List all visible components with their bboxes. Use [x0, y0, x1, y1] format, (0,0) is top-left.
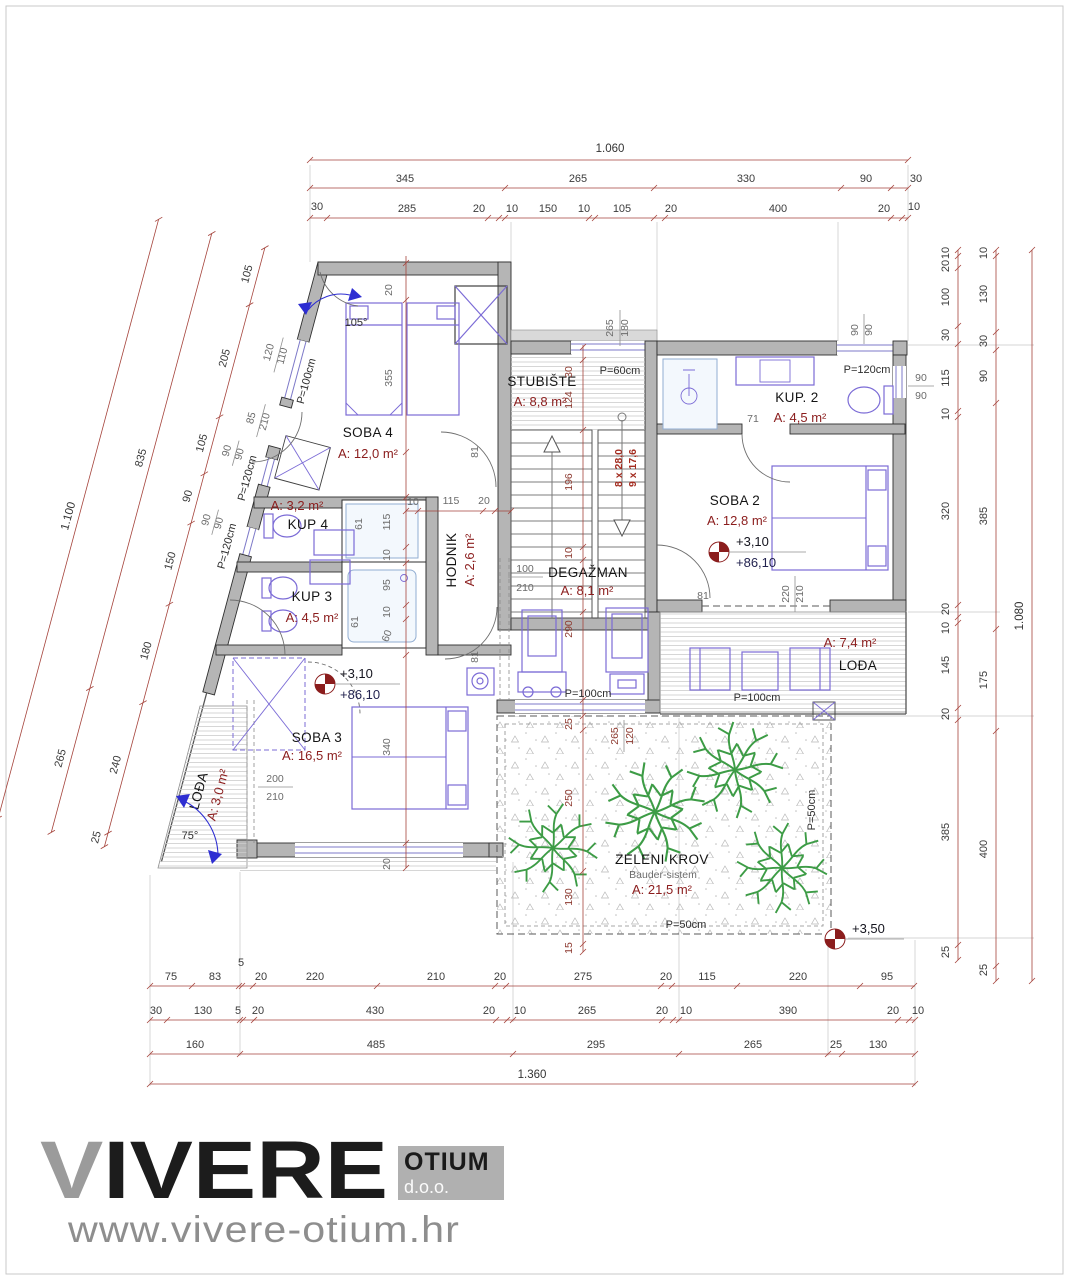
dim-label: 10 — [940, 247, 952, 259]
dim-label: 175 — [978, 671, 990, 689]
dim-label: 295 — [587, 1039, 605, 1051]
parapet-label: P=100cm — [565, 688, 612, 700]
room-area: A: 2,6 m² — [462, 533, 477, 586]
dim-label: 210 — [794, 585, 806, 603]
room-name: DEGAŽMAN — [548, 565, 628, 580]
dim-label: 200 — [266, 773, 284, 785]
dim-label: 124 — [563, 391, 575, 409]
dim-label: 340 — [381, 738, 393, 756]
dim-label: 10 — [381, 549, 393, 561]
room-name: KUP 4 — [288, 517, 329, 532]
parapet-label: P=120cm — [844, 364, 891, 376]
room-area: A: 16,5 m² — [282, 748, 343, 763]
parapet-label: P=50cm — [666, 919, 707, 931]
dim-label: 20 — [665, 203, 677, 215]
bed-single — [407, 303, 459, 415]
dim-label: 130 — [563, 888, 575, 906]
dim-label: 10 — [940, 408, 952, 420]
logo-website: www.vivere-otium.hr — [67, 1209, 460, 1250]
dim-label: 15 — [563, 942, 575, 954]
logo-brand: VIVERE — [40, 1125, 388, 1216]
room-area: A: 4,5 m² — [774, 410, 827, 425]
room-area: A: 4,5 m² — [286, 610, 339, 625]
dim-label: 210 — [516, 582, 534, 594]
dim-label: 1.360 — [518, 1069, 547, 1081]
door-width: 61 — [353, 518, 365, 530]
dim-label: 90 — [915, 390, 927, 402]
vanity-basin — [760, 360, 790, 382]
shower-kup2 — [663, 359, 717, 429]
dim-label: 250 — [563, 789, 575, 807]
dim-label: 835 — [133, 448, 149, 469]
dim-label: 25 — [830, 1039, 842, 1051]
parapet-label: P=50cm — [806, 790, 818, 831]
stair-rise-label: 9 x 17,6 — [627, 449, 639, 487]
angle-label: 105° — [345, 317, 368, 329]
dim-label: 20 — [656, 1005, 668, 1017]
dim-label: 265 — [569, 173, 587, 185]
dim-label: 20 — [494, 971, 506, 983]
dim-label: 20 — [660, 971, 672, 983]
dim-label: 390 — [779, 1005, 797, 1017]
dim-label: 345 — [396, 173, 414, 185]
dim-label: 20 — [473, 203, 485, 215]
dim-label: 85 — [244, 411, 259, 426]
level-marker-icon — [315, 674, 335, 694]
dim-label: 100 — [516, 563, 534, 575]
parapet-label: P=60cm — [600, 365, 641, 377]
dim-label: 5 — [238, 957, 244, 969]
dim-label: 385 — [940, 823, 952, 841]
door-width: 61 — [349, 616, 361, 628]
dim-label: 1.060 — [596, 143, 625, 155]
dim-label: 30 — [910, 173, 922, 185]
dim-label: 265 — [53, 748, 69, 769]
dim-label: 30 — [978, 335, 990, 347]
dim-label: 265 — [609, 727, 621, 745]
dim-label: 355 — [383, 369, 395, 387]
dim-label: 130 — [978, 285, 990, 303]
room-name: SOBA 4 — [343, 425, 394, 440]
dim-label: 385 — [978, 507, 990, 525]
dim-label: 83 — [209, 971, 221, 983]
dim-label: 180 — [138, 640, 154, 661]
dim-label: 1.080 — [1014, 602, 1026, 631]
stair-rise-label: 8 x 28,0 — [613, 449, 625, 487]
dim-label: 20 — [252, 1005, 264, 1017]
room-area: A: 7,4 m² — [824, 635, 877, 650]
dim-label: 115 — [443, 495, 460, 507]
dim-label: 400 — [978, 840, 990, 858]
dim-label: 75 — [165, 971, 177, 983]
dim-label: 10 — [978, 247, 990, 259]
dim-label: 20 — [255, 971, 267, 983]
dim-label: 130 — [194, 1005, 212, 1017]
room-name: ZELENI KROV — [615, 852, 709, 867]
door-width: 81 — [469, 651, 481, 663]
level-marker-icon — [709, 542, 729, 562]
dim-label: 20 — [940, 708, 952, 720]
dim-label: 265 — [604, 319, 616, 337]
room-area: A: 8,8 m² — [514, 394, 567, 409]
closet-box — [275, 436, 331, 490]
room-area: A: 3,2 m² — [271, 498, 324, 513]
dim-label: 25 — [89, 830, 104, 845]
dim-label: 20 — [887, 1005, 899, 1017]
dim-label: 320 — [940, 502, 952, 520]
dim-chain-right: 10 20 100 30 115 10 320 20 10 145 20 385… — [940, 247, 1035, 984]
dim-label: 330 — [737, 173, 755, 185]
dim-label: 95 — [381, 579, 393, 591]
door-width: 81 — [469, 446, 481, 458]
dim-label: 485 — [367, 1039, 385, 1051]
room-name: SOBA 3 — [292, 730, 342, 745]
room-subtitle: Bauder-sistem — [629, 869, 697, 881]
dim-label: 130 — [869, 1039, 887, 1051]
dim-label: 100 — [940, 288, 952, 306]
dim-label: 10 — [407, 496, 419, 508]
dim-label: 30 — [563, 366, 575, 378]
dim-label: 290 — [563, 620, 575, 638]
dim-label: 240 — [108, 754, 124, 775]
dim-label: 105 — [194, 433, 210, 454]
door-width: 71 — [747, 413, 759, 425]
dim-label: 430 — [366, 1005, 384, 1017]
dim-label: 5 — [235, 1005, 241, 1017]
room-area: A: 12,0 m² — [338, 446, 399, 461]
dim-label: 205 — [217, 348, 233, 369]
dim-chain-bottom: 75 83 5 20 220 210 20 275 20 115 220 95 … — [147, 957, 924, 1087]
dim-label: 20 — [483, 1005, 495, 1017]
dim-label: 20 — [878, 203, 890, 215]
dim-chain-top: 1.060 345 265 330 90 30 30 285 20 10 150… — [307, 143, 922, 221]
eaves-strip — [240, 858, 496, 872]
room-name: KUP 3 — [292, 589, 333, 604]
parapet-label: P=100cm — [734, 692, 781, 704]
washing-machine — [467, 668, 494, 695]
dim-label: 265 — [578, 1005, 596, 1017]
dim-label: 275 — [574, 971, 592, 983]
level-label: +3,50 — [852, 921, 885, 936]
dim-label: 180 — [619, 319, 631, 337]
logo-box-subtitle: d.o.o. — [404, 1177, 449, 1197]
dim-label: 10 — [578, 203, 590, 215]
dim-label: 220 — [789, 971, 807, 983]
logo-box-title: OTIUM — [404, 1148, 490, 1176]
logo: VIVERE OTIUM d.o.o. www.vivere-otium.hr — [40, 1125, 504, 1250]
angle-label: 75° — [182, 830, 199, 842]
dim-label: 10 — [912, 1005, 924, 1017]
dim-label: 115 — [940, 369, 952, 387]
level-label: +86,10 — [340, 687, 380, 702]
dim-label: 115 — [698, 971, 716, 983]
dim-label: 20 — [381, 858, 393, 870]
dim-label: 210 — [427, 971, 445, 983]
dim-label: 90 — [915, 372, 927, 384]
dim-label: 115 — [381, 513, 393, 530]
dim-label: 265 — [744, 1039, 762, 1051]
dim-label: 120 — [624, 727, 636, 745]
bed-double — [352, 707, 468, 809]
dim-label: 10 — [940, 622, 952, 634]
dim-label: 20 — [940, 260, 952, 272]
dim-label: 220 — [780, 585, 792, 603]
dim-label: 10 — [506, 203, 518, 215]
toilet — [848, 386, 893, 414]
level-label: +86,10 — [736, 555, 776, 570]
dim-label: 30 — [940, 329, 952, 341]
door-width: 81 — [697, 590, 709, 602]
dim-label: 95 — [881, 971, 893, 983]
dim-label: 145 — [940, 656, 952, 674]
dim-label: 90 — [978, 370, 990, 382]
dim-label: 150 — [162, 551, 178, 572]
dim-label: 1.100 — [59, 501, 78, 532]
dim-label: 90 — [863, 324, 875, 336]
floor-plan-drawing: 1.060 345 265 330 90 30 30 285 20 10 150… — [0, 0, 1069, 1280]
dim-label: 285 — [398, 203, 416, 215]
dim-label: 400 — [769, 203, 787, 215]
room-name: LOĐA — [839, 658, 877, 673]
dim-label: 20 — [383, 284, 395, 296]
dim-label: 10 — [908, 201, 920, 213]
dim-label: 10 — [680, 1005, 692, 1017]
level-label: +3,10 — [736, 534, 769, 549]
room-area: A: 8,1 m² — [561, 583, 614, 598]
dim-label: 25 — [563, 718, 575, 730]
dim-label: 20 — [940, 603, 952, 615]
dim-label: 160 — [186, 1039, 204, 1051]
dim-label: 30 — [150, 1005, 162, 1017]
dim-label: 10 — [563, 547, 575, 559]
level-label: +3,10 — [340, 666, 373, 681]
dim-label: 30 — [311, 201, 323, 213]
dim-label: 196 — [563, 473, 575, 491]
dim-label: 90 — [181, 489, 196, 504]
level-marker-icon — [825, 929, 845, 949]
floor-plan-sheet: 1.060 345 265 330 90 30 30 285 20 10 150… — [0, 0, 1069, 1280]
dim-label: 150 — [539, 203, 557, 215]
dim-label: 210 — [266, 791, 284, 803]
dim-label: 105 — [613, 203, 631, 215]
room-name: KUP. 2 — [775, 390, 818, 405]
dim-label: 25 — [978, 964, 990, 976]
dim-label: 10 — [381, 606, 393, 618]
dim-label: 105 — [239, 264, 255, 285]
dim-label: 10 — [514, 1005, 526, 1017]
room-name: HODNIK — [444, 533, 459, 588]
dim-label: 20 — [478, 495, 490, 507]
room-area: A: 21,5 m² — [632, 882, 693, 897]
dim-label: 90 — [860, 173, 872, 185]
dim-label: 90 — [849, 324, 861, 336]
room-area: A: 12,8 m² — [707, 513, 768, 528]
dim-label: 25 — [940, 946, 952, 958]
dim-label: 220 — [306, 971, 324, 983]
vanity — [736, 357, 814, 385]
room-name: SOBA 2 — [710, 493, 760, 508]
